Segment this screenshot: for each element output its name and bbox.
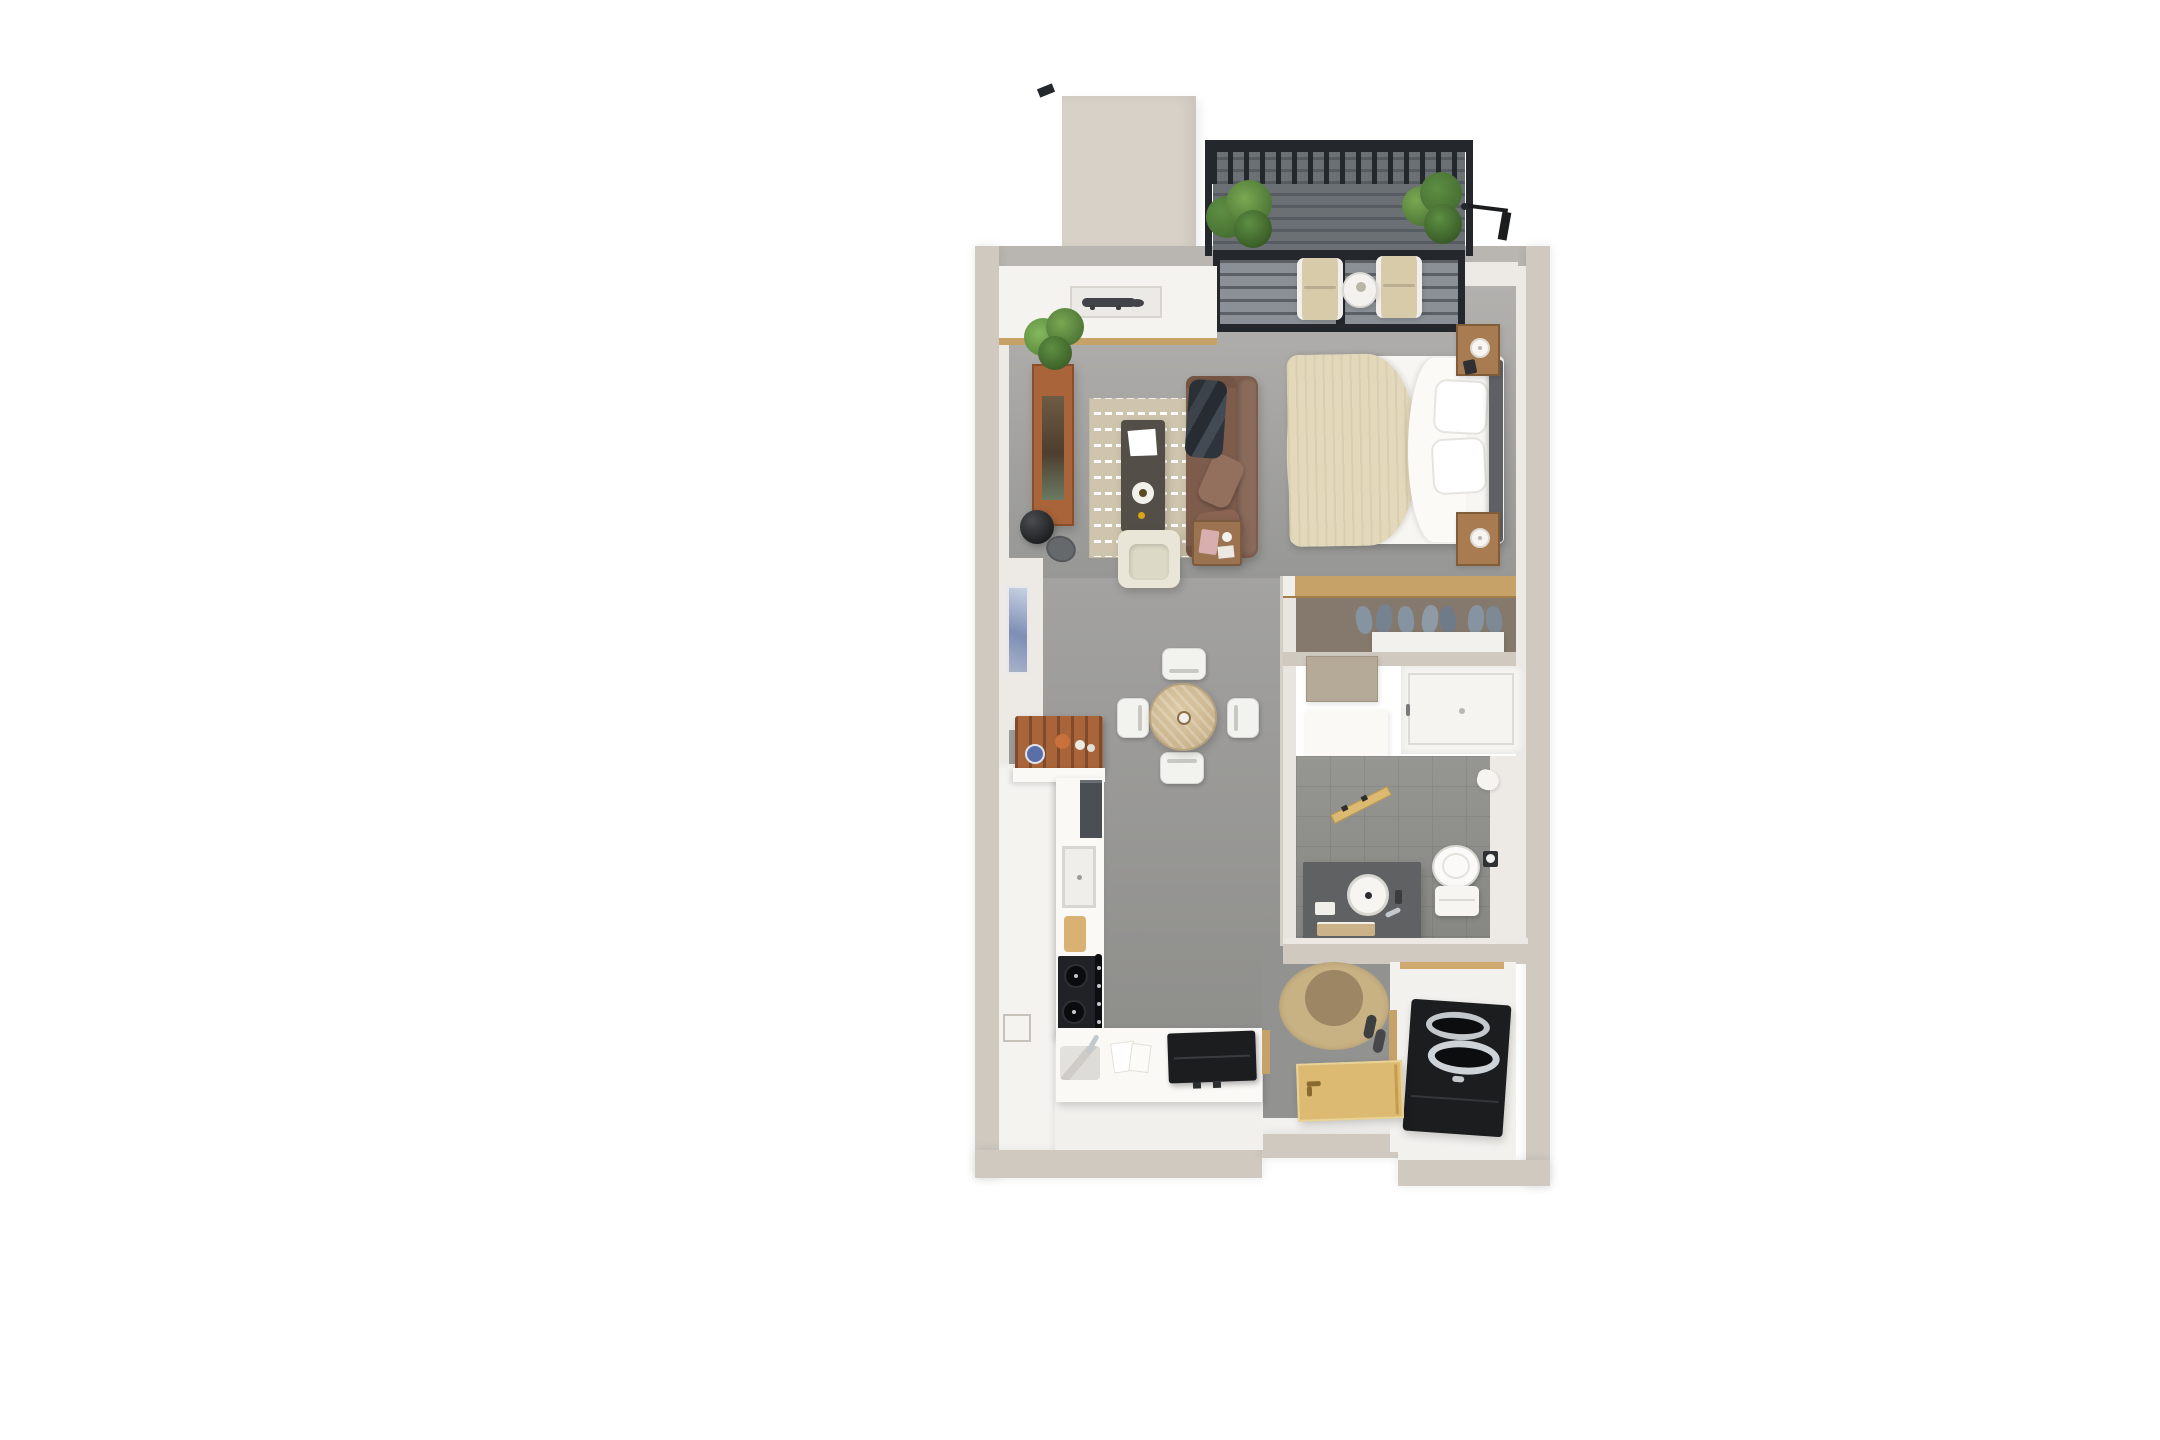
toilet-paper-holder	[1483, 851, 1498, 867]
refrigerator-panel	[1080, 780, 1102, 838]
blue-plate	[1025, 744, 1045, 764]
dryer-lid-ring	[1427, 1038, 1501, 1077]
unit-highlight	[1411, 1095, 1499, 1103]
table-lamp	[1470, 528, 1490, 548]
door-hinge	[1341, 805, 1349, 812]
sink-recess	[1062, 846, 1096, 908]
vanity-faucet	[1385, 907, 1402, 918]
crocodile-sculpture	[1082, 294, 1148, 310]
garment	[1439, 605, 1458, 635]
dining-chair-south	[1160, 752, 1204, 784]
niche-square	[1003, 1014, 1031, 1042]
paper-sheet	[1128, 1043, 1151, 1073]
rail-fragment	[1037, 83, 1055, 97]
washer-lid-ring	[1425, 1010, 1491, 1042]
pillow	[1431, 437, 1488, 496]
bowl-inner	[1442, 853, 1470, 879]
console-plant	[1022, 306, 1086, 374]
shower-handle	[1406, 704, 1410, 716]
chair-seat-line	[1169, 669, 1199, 673]
toilet-tank	[1435, 886, 1479, 916]
appliance-leg	[1213, 1082, 1221, 1088]
wall-art	[1007, 586, 1029, 674]
black-countertop-appliance	[1167, 1030, 1257, 1083]
linen-box	[1306, 710, 1388, 758]
left-wall	[975, 246, 999, 1178]
bottom-right-wall	[1398, 1160, 1550, 1186]
lamp-finial	[1478, 536, 1482, 540]
appliance-leg	[1193, 1082, 1201, 1088]
table-paper	[1125, 425, 1161, 461]
sink-drain	[1077, 875, 1082, 880]
knob	[1097, 966, 1101, 970]
header-cap	[1283, 576, 1295, 596]
knob	[1097, 1002, 1101, 1006]
cup	[1222, 532, 1232, 542]
plant-foliage	[1424, 204, 1462, 244]
chair-seat-line	[1167, 759, 1197, 763]
bedroom-north-face	[1462, 262, 1518, 286]
bottom-left-wall	[975, 1150, 1262, 1178]
bistro-table	[1342, 272, 1378, 308]
shell-decor	[1087, 744, 1095, 752]
pillow	[1433, 379, 1490, 436]
towel-stack	[1317, 922, 1375, 936]
centerpiece	[1177, 711, 1191, 725]
lamp-finial	[1478, 346, 1482, 350]
burner-center	[1074, 974, 1078, 978]
garment	[1397, 605, 1415, 634]
paper-roll	[1486, 854, 1495, 863]
console-inner-panel	[1042, 396, 1064, 500]
burner	[1062, 1000, 1086, 1024]
armchair-seat	[1129, 544, 1169, 580]
toilet-bowl	[1432, 845, 1480, 889]
cooktop	[1058, 956, 1102, 1038]
duvet	[1286, 353, 1417, 547]
burner	[1064, 964, 1088, 988]
knob	[1097, 1020, 1101, 1024]
slipper	[1372, 1028, 1387, 1054]
flower-dish	[1132, 482, 1154, 504]
lounge-chair-right	[1376, 256, 1422, 318]
exterior-lamp-mount	[1461, 203, 1468, 210]
garment	[1467, 604, 1485, 634]
shower-drain	[1459, 708, 1465, 714]
burner-center	[1072, 1010, 1076, 1014]
dining-chair-east	[1227, 698, 1259, 738]
armchair	[1118, 530, 1180, 588]
exterior-lamp-head	[1498, 211, 1512, 240]
cushion-seam	[1383, 284, 1415, 287]
table-lamp	[1470, 338, 1490, 358]
lounge-chair-left	[1297, 258, 1343, 320]
croc-leg	[1090, 305, 1095, 310]
washer-dryer-unit	[1403, 999, 1512, 1138]
flower-center	[1139, 489, 1147, 497]
plant-foliage	[1038, 336, 1072, 370]
croc-head	[1130, 299, 1144, 307]
door-hinge	[1360, 795, 1368, 802]
jute-rug-center	[1305, 970, 1363, 1026]
garment	[1484, 605, 1503, 635]
right-wall-face	[1516, 266, 1526, 962]
yellow-accent	[1138, 512, 1145, 519]
shell-decor	[1055, 734, 1070, 749]
balcony-railing-top	[1205, 140, 1473, 152]
vanity	[1303, 862, 1421, 940]
door-handle	[1307, 1086, 1312, 1096]
soap-bottle	[1395, 890, 1402, 904]
peninsula-sink	[1060, 1046, 1100, 1080]
garment	[1420, 604, 1439, 635]
appliance-seam	[1174, 1055, 1250, 1060]
kitchen-left-strip	[999, 764, 1057, 1150]
plate-rack	[1015, 716, 1103, 772]
right-wall	[1526, 246, 1550, 1186]
knob	[1097, 984, 1101, 988]
dining-chair-north	[1162, 648, 1206, 680]
shower	[1401, 666, 1523, 754]
front-door	[1296, 1060, 1404, 1122]
table-pot	[1356, 282, 1366, 292]
washer-knob	[1452, 1076, 1464, 1083]
chair-seat-line	[1138, 705, 1142, 731]
round-dining-table	[1149, 683, 1217, 751]
plant-foliage	[1234, 210, 1272, 248]
side-table	[1192, 520, 1242, 566]
nightstand-north	[1456, 324, 1500, 376]
card	[1217, 545, 1234, 559]
laundry-wood-trim	[1400, 962, 1504, 969]
dining-chair-west	[1117, 698, 1149, 738]
book	[1198, 529, 1219, 555]
sink-drain	[1365, 892, 1372, 899]
phone	[1463, 359, 1478, 375]
balcony-railing-right	[1466, 140, 1473, 256]
floor-plan	[0, 0, 2160, 1440]
potted-plant-left	[1206, 178, 1274, 252]
chimney-block	[1062, 96, 1196, 250]
media-console	[1032, 364, 1074, 526]
door-edge-line	[1394, 1064, 1399, 1114]
garment	[1374, 603, 1393, 635]
throw-blanket	[1184, 379, 1227, 459]
nightstand-south	[1456, 512, 1500, 566]
closet-dresser	[1306, 656, 1378, 702]
cushion-seam	[1304, 286, 1336, 289]
chair-seat-line	[1234, 705, 1238, 731]
tank-lid-line	[1439, 899, 1475, 901]
living-east-wall	[1280, 576, 1296, 946]
kitchen-edge-wood	[1262, 1030, 1270, 1074]
bath-south-wall	[1283, 938, 1528, 964]
cutting-board	[1064, 916, 1086, 952]
shell-decor	[1075, 740, 1085, 750]
garment	[1354, 605, 1374, 635]
peninsula-counter	[1056, 1028, 1262, 1102]
closet-header-wood	[1283, 576, 1516, 598]
vessel-sink	[1347, 874, 1389, 916]
coffee-table	[1121, 420, 1165, 532]
potted-plant-right	[1402, 172, 1462, 248]
vanity-tray	[1315, 902, 1335, 915]
croc-leg	[1116, 305, 1121, 310]
